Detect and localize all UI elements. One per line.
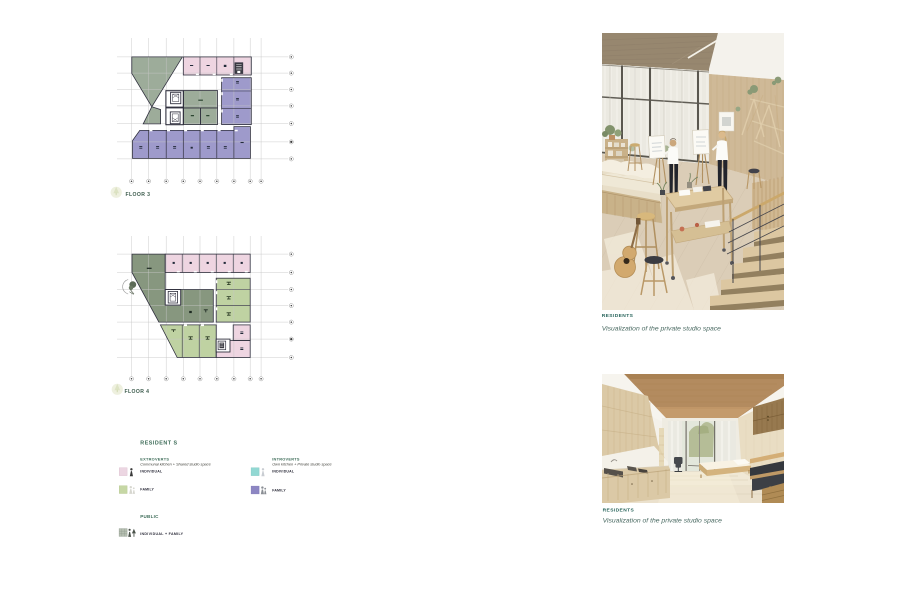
svg-text:EXTROVERTS: EXTROVERTS: [140, 457, 169, 462]
svg-text:PUBLIC: PUBLIC: [140, 514, 159, 519]
svg-text:INDIVIDUAL: INDIVIDUAL: [140, 470, 163, 474]
svg-text:Visualization of the private s: Visualization of the private studio spac…: [602, 325, 721, 332]
svg-text:Visualization of the private s: Visualization of the private studio spac…: [603, 517, 722, 524]
svg-text:FLOOR 3: FLOOR 3: [126, 192, 151, 198]
svg-text:INTROVERTS: INTROVERTS: [272, 456, 300, 461]
svg-text:RESIDENT S: RESIDENT S: [140, 440, 177, 446]
svg-text:RESIDENTS: RESIDENTS: [603, 507, 635, 513]
svg-text:FAMILY: FAMILY: [272, 488, 286, 492]
svg-text:FAMILY: FAMILY: [140, 488, 154, 492]
svg-text:Own kitchen + Private studio s: Own kitchen + Private studio space: [272, 462, 331, 466]
svg-text:FLOOR 4: FLOOR 4: [125, 389, 150, 395]
svg-text:INDIVIDUAL + FAMILY: INDIVIDUAL + FAMILY: [140, 532, 183, 536]
svg-text:RESIDENTS: RESIDENTS: [602, 313, 634, 319]
svg-text:Communal kitchen + Shared stud: Communal kitchen + Shared studio space: [140, 463, 210, 467]
svg-text:INDIVIDUAL: INDIVIDUAL: [272, 470, 295, 474]
